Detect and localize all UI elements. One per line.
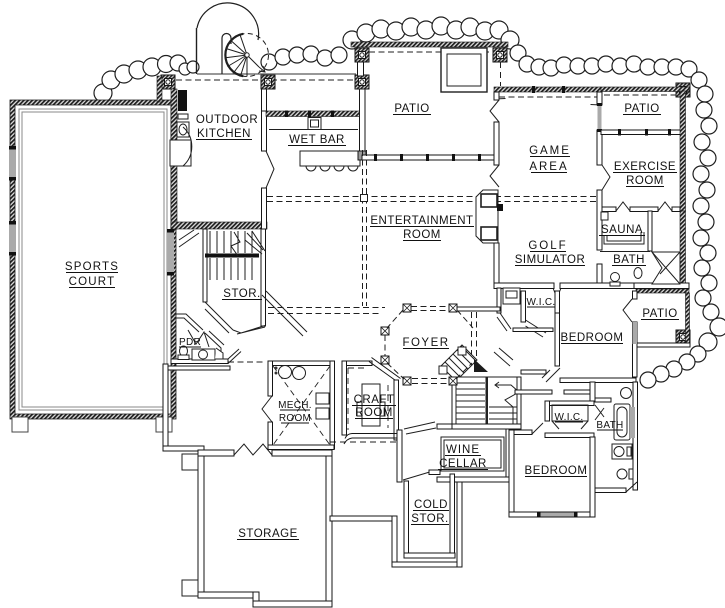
svg-text:PDR: PDR	[179, 337, 201, 348]
svg-text:W.I.C.: W.I.C.	[526, 297, 555, 308]
svg-text:SIMULATOR: SIMULATOR	[515, 254, 586, 266]
svg-text:CELLAR: CELLAR	[439, 458, 487, 470]
svg-text:STOR.: STOR.	[411, 513, 448, 525]
svg-text:ROOM: ROOM	[279, 413, 311, 424]
svg-text:FOYER: FOYER	[402, 337, 449, 349]
svg-text:WINE: WINE	[446, 444, 480, 456]
svg-text:PATIO: PATIO	[394, 103, 429, 115]
svg-text:COURT: COURT	[69, 276, 116, 288]
svg-text:GAME: GAME	[529, 145, 571, 157]
svg-text:ROOM: ROOM	[626, 175, 664, 187]
svg-text:BATH: BATH	[596, 420, 623, 431]
svg-text:GOLF: GOLF	[528, 240, 567, 252]
svg-text:SAUNA: SAUNA	[601, 224, 643, 236]
svg-text:BEDROOM: BEDROOM	[525, 465, 588, 477]
svg-text:PATIO: PATIO	[642, 308, 677, 320]
svg-text:CRAFT: CRAFT	[354, 394, 395, 406]
svg-text:KITCHEN: KITCHEN	[197, 128, 251, 140]
svg-text:STORAGE: STORAGE	[238, 528, 298, 540]
svg-text:EXERCISE: EXERCISE	[614, 161, 676, 173]
svg-text:BATH: BATH	[613, 254, 645, 266]
svg-text:PATIO: PATIO	[624, 103, 659, 115]
svg-text:AREA: AREA	[529, 161, 568, 173]
svg-text:ROOM: ROOM	[355, 407, 393, 419]
svg-text:ENTERTAINMENT: ENTERTAINMENT	[370, 215, 473, 227]
svg-text:MECH.: MECH.	[278, 400, 312, 411]
svg-text:WET BAR: WET BAR	[289, 134, 345, 146]
svg-text:COLD: COLD	[414, 499, 448, 511]
svg-text:BEDROOM: BEDROOM	[561, 332, 624, 344]
svg-text:W.I.C.: W.I.C.	[554, 412, 583, 423]
svg-text:STOR.: STOR.	[223, 288, 260, 300]
svg-text:ROOM: ROOM	[403, 229, 441, 241]
svg-text:SPORTS: SPORTS	[65, 261, 119, 273]
svg-text:OUTDOOR: OUTDOOR	[196, 114, 258, 126]
